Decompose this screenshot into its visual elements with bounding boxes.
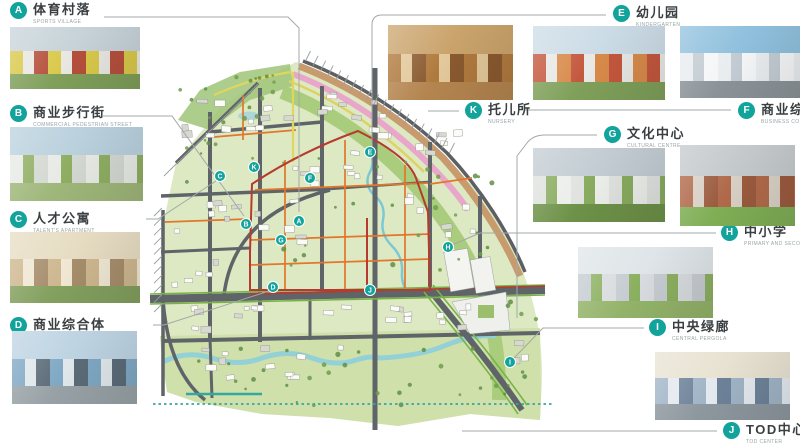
svg-text:J: J <box>368 287 372 294</box>
callout-caption: SPORTS VILLAGE <box>33 19 91 25</box>
south-park <box>160 328 541 426</box>
photo-kindergarten <box>533 26 665 100</box>
photo-cultural-centre <box>533 148 665 222</box>
callout-cultural-centre: G文化中心CULTURAL CENTRE <box>604 126 685 149</box>
photo-sports-village <box>10 27 140 89</box>
svg-text:F: F <box>308 175 313 182</box>
callout-title: 商业综合体 <box>33 317 106 332</box>
callout-title: 幼儿园 <box>636 5 680 20</box>
callout-title: 商业步行街 <box>33 105 132 120</box>
callout-title: 商业综合体 <box>761 102 800 117</box>
svg-text:K: K <box>251 164 256 171</box>
photo-central-pergola <box>578 247 713 318</box>
badge-a: A <box>10 2 27 19</box>
badge-e: E <box>613 5 630 22</box>
callout-nursery: K托儿所NURSERY <box>465 102 532 125</box>
photo-business-complex-d <box>12 331 137 404</box>
callout-sports-village: A体育村落SPORTS VILLAGE <box>10 2 91 25</box>
callout-title: 中小学 <box>744 224 800 239</box>
callout-title: 人才公寓 <box>33 211 95 226</box>
svg-text:A: A <box>296 218 301 225</box>
callout-caption: PRIMARY AND SECONDARY SCHOOL <box>744 241 800 247</box>
callout-caption: BUSINESS COMPLEX <box>761 119 800 125</box>
callout-caption: CENTRAL PERGOLA <box>672 336 730 342</box>
callout-title: 托儿所 <box>488 102 532 117</box>
badge-i: I <box>649 319 666 336</box>
callout-title: 体育村落 <box>33 2 91 17</box>
callout-kindergarten: E幼儿园KINDERGARTEN <box>613 5 680 28</box>
callout-tod-center: JTOD中心TOD CENTER <box>723 422 800 445</box>
callout-title: TOD中心 <box>746 422 800 437</box>
callout-central-pergola: I中央绿廊CENTRAL PERGOLA <box>649 319 730 342</box>
svg-text:C: C <box>217 173 222 180</box>
callout-title: 中央绿廊 <box>672 319 730 334</box>
badge-j: J <box>723 422 740 439</box>
callout-talent-apartment: C人才公寓TALENT'S APARTMENT <box>10 211 95 234</box>
svg-text:E: E <box>368 149 373 156</box>
photo-nursery <box>388 25 513 100</box>
svg-text:H: H <box>445 244 450 251</box>
masterplan-page: ABCDEFGHIJK A体育村落SPORTS VILLAGE B商业步行街CO… <box>0 0 800 445</box>
badge-f: F <box>738 102 755 119</box>
callout-caption: NURSERY <box>488 119 532 125</box>
svg-text:G: G <box>278 237 284 244</box>
photo-school <box>680 145 795 226</box>
callout-business-complex-f: F商业综合体BUSINESS COMPLEX <box>738 102 800 125</box>
badge-h: H <box>721 224 738 241</box>
badge-c: C <box>10 211 27 228</box>
photo-tod-center <box>655 352 790 420</box>
badge-b: B <box>10 105 27 122</box>
svg-text:B: B <box>243 221 248 228</box>
badge-k: K <box>465 102 482 119</box>
callout-caption: TOD CENTER <box>746 439 800 445</box>
svg-text:I: I <box>509 359 511 366</box>
photo-business-complex-f <box>680 26 800 98</box>
photo-talent-apartment <box>10 232 140 303</box>
callout-pedestrian-street: B商业步行街COMMERCIAL PEDESTRIAN STREET <box>10 105 132 128</box>
badge-g: G <box>604 126 621 143</box>
callout-school: H中小学PRIMARY AND SECONDARY SCHOOL <box>721 224 800 247</box>
callout-title: 文化中心 <box>627 126 685 141</box>
svg-text:D: D <box>270 284 275 291</box>
photo-pedestrian-street <box>10 127 143 201</box>
